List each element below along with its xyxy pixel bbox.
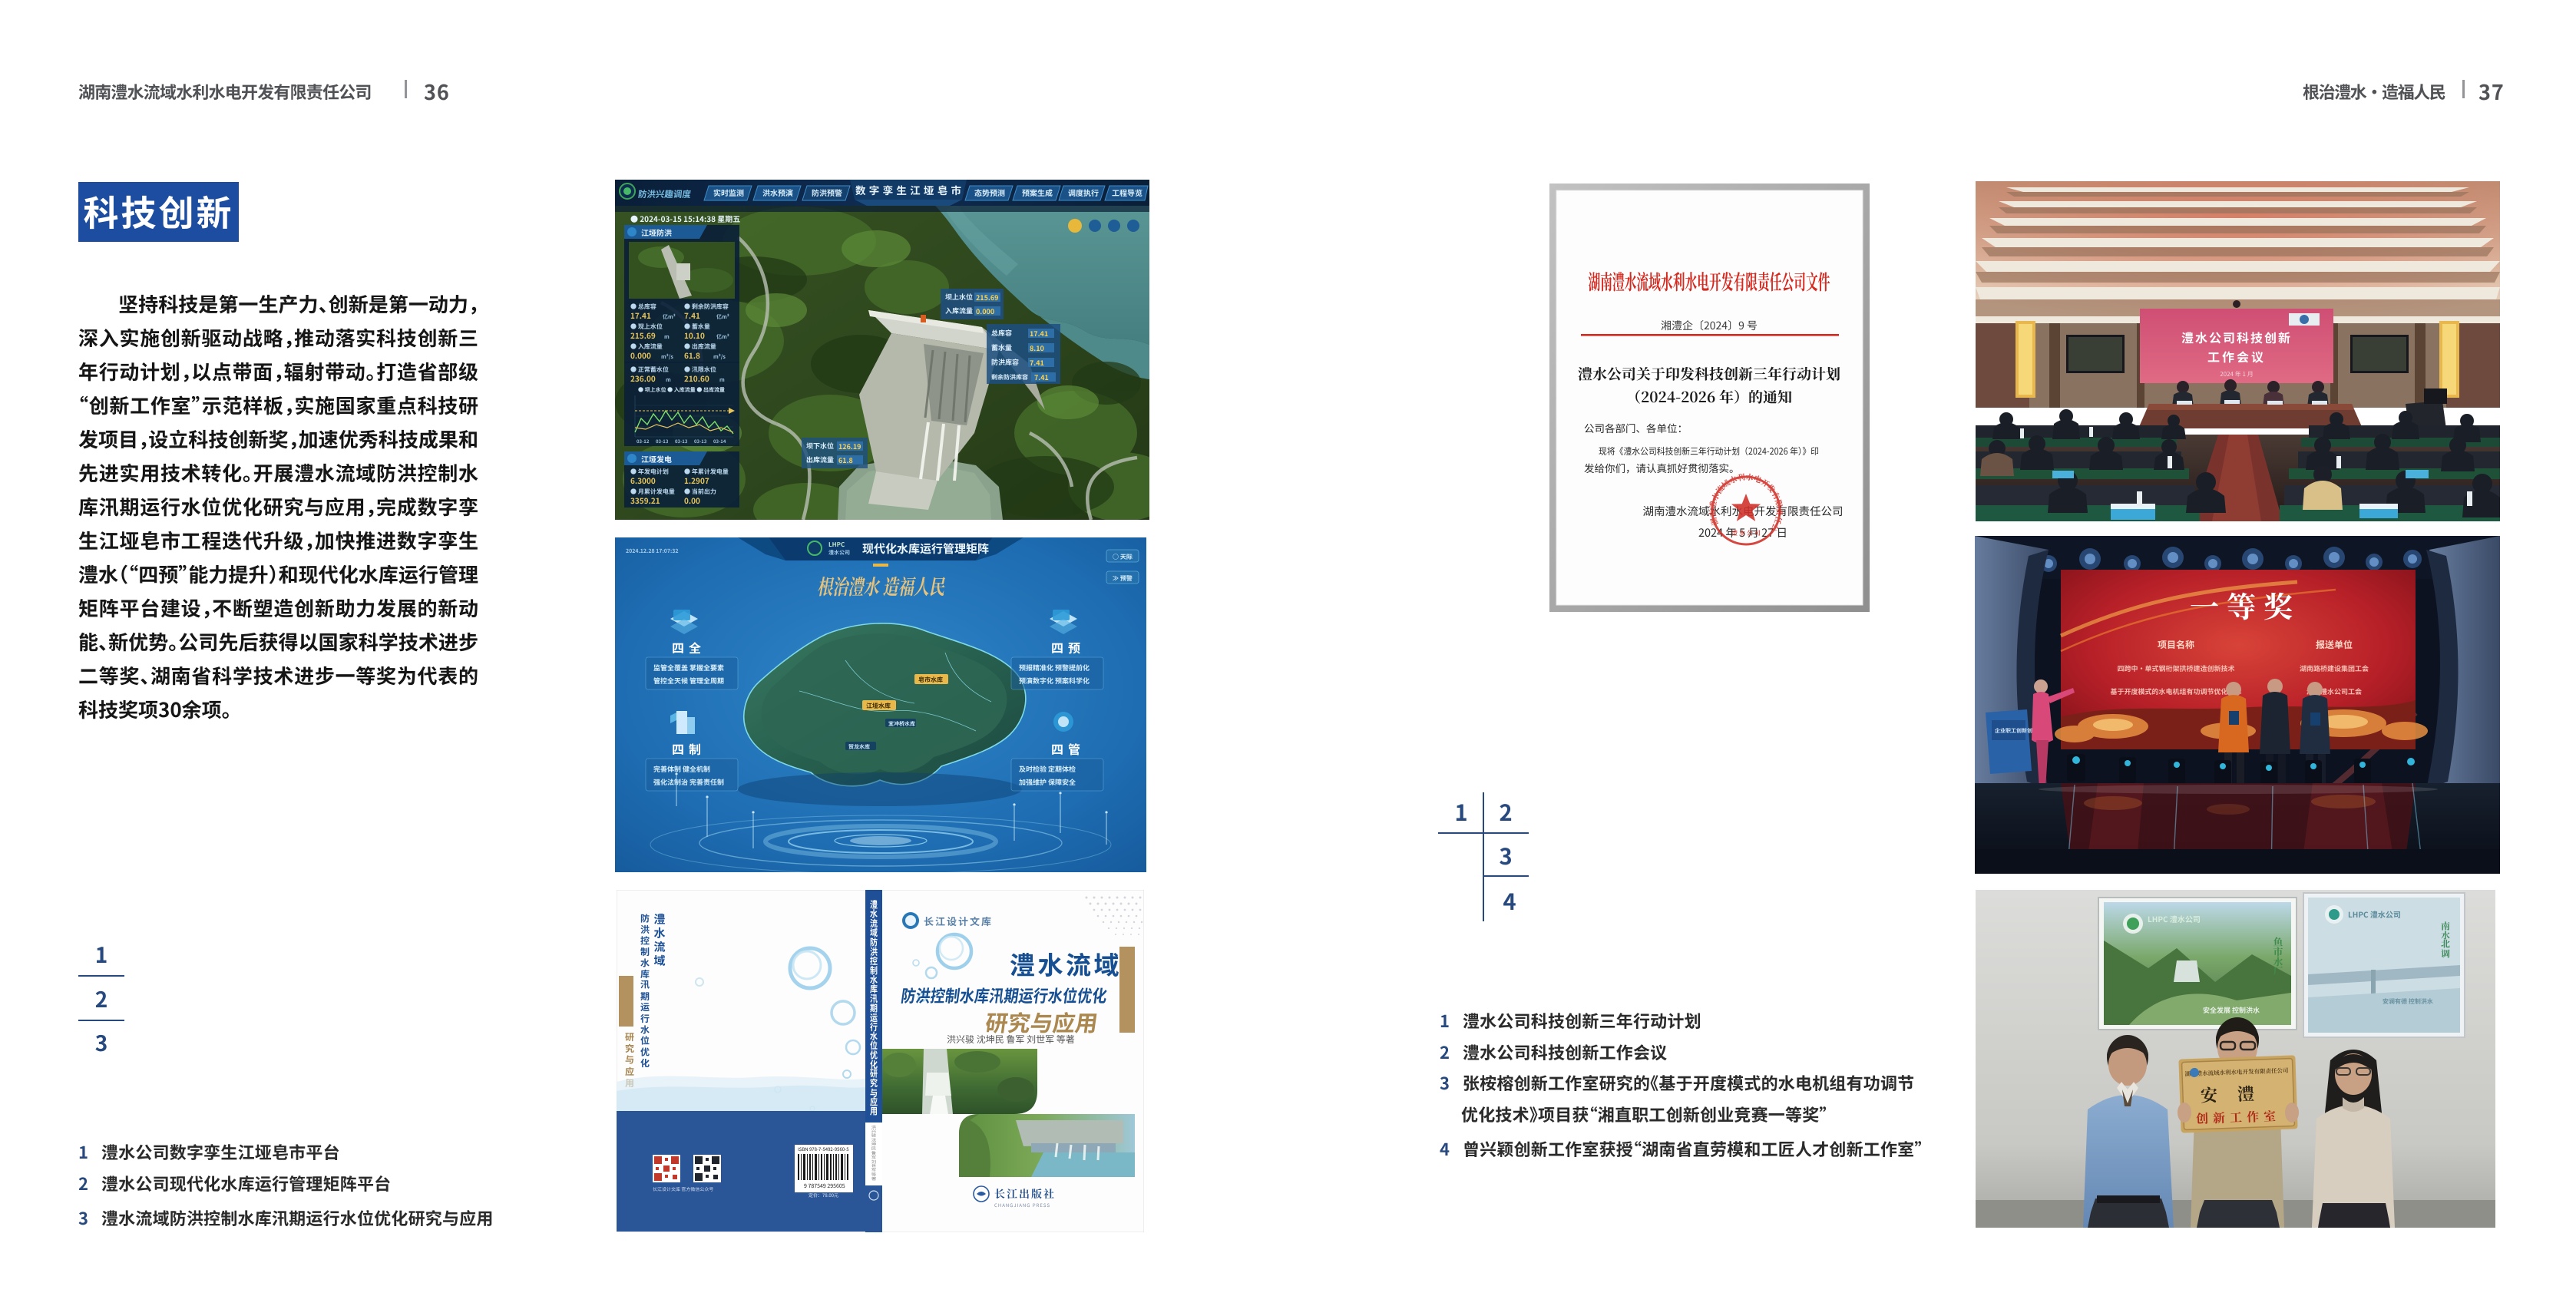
svg-text:126.19: 126.19 bbox=[838, 441, 861, 451]
svg-text:LHPC 澧水公司: LHPC 澧水公司 bbox=[2348, 908, 2401, 920]
svg-text:长江出版社: 长江出版社 bbox=[994, 1186, 1056, 1202]
svg-text:ISBN 978-7-5492-9560-5: ISBN 978-7-5492-9560-5 bbox=[798, 1146, 849, 1152]
svg-text:防洪库容: 防洪库容 bbox=[991, 357, 1019, 367]
svg-text:江垭水库: 江垭水库 bbox=[866, 702, 891, 710]
svg-text:亿m³: 亿m³ bbox=[663, 313, 676, 321]
svg-text:现代化水库运行管理矩阵: 现代化水库运行管理矩阵 bbox=[862, 541, 989, 557]
svg-text:61.8: 61.8 bbox=[684, 349, 700, 361]
svg-text:m³/s: m³/s bbox=[661, 353, 673, 361]
svg-text:发给你们，请认真抓好贯彻落实。: 发给你们，请认真抓好贯彻落实。 bbox=[1584, 460, 1740, 475]
svg-text:9 787549 295605: 9 787549 295605 bbox=[804, 1182, 845, 1190]
svg-text:鱼市水厂: 鱼市水厂 bbox=[2271, 936, 2286, 977]
svg-text:0.00: 0.00 bbox=[684, 494, 700, 506]
svg-text:（2024-2026 年）的通知: （2024-2026 年）的通知 bbox=[1626, 386, 1792, 407]
svg-text:长江设计文库: 长江设计文库 bbox=[924, 914, 993, 928]
svg-text:完善体制 健全机制: 完善体制 健全机制 bbox=[653, 764, 710, 774]
svg-text:公司各部门、各单位：: 公司各部门、各单位： bbox=[1584, 420, 1688, 435]
svg-text:澧水公司科技创新: 澧水公司科技创新 bbox=[2181, 328, 2292, 346]
svg-text:管控全天候 管理全周期: 管控全天候 管理全周期 bbox=[653, 676, 724, 686]
svg-text:61.8: 61.8 bbox=[838, 455, 853, 465]
svg-text:洪兴骏 沈坤民 鲁军 刘世军 等著: 洪兴骏 沈坤民 鲁军 刘世军 等著 bbox=[947, 1033, 1075, 1046]
svg-text:LHPC 澧水公司: LHPC 澧水公司 bbox=[2148, 913, 2201, 924]
svg-text:8.10: 8.10 bbox=[1030, 343, 1044, 353]
svg-text:m: m bbox=[666, 376, 671, 384]
svg-text:澧水公司: 澧水公司 bbox=[828, 549, 850, 557]
svg-text:17.41: 17.41 bbox=[1030, 329, 1048, 339]
svg-text:6.3000: 6.3000 bbox=[630, 474, 656, 486]
svg-text:预报精准化 预警提前化: 预报精准化 预警提前化 bbox=[1019, 663, 1090, 673]
svg-text:坝上水位: 坝上水位 bbox=[945, 292, 973, 302]
svg-text:防洪兴趣调度: 防洪兴趣调度 bbox=[637, 188, 692, 200]
svg-text:湖南澧水流域水利水电开发有限责任公司文件: 湖南澧水流域水利水电开发有限责任公司文件 bbox=[1589, 266, 1830, 296]
svg-text:剩余防洪库容: 剩余防洪库容 bbox=[991, 373, 1028, 382]
svg-text:亿m³: 亿m³ bbox=[716, 313, 729, 321]
svg-text:预案生成: 预案生成 bbox=[1022, 187, 1053, 198]
svg-text:创新工作室: 创新工作室 bbox=[2196, 1106, 2281, 1127]
svg-text:预演数字化 预案科学化: 预演数字化 预案科学化 bbox=[1019, 676, 1090, 686]
svg-text:及时检验 定期体检: 及时检验 定期体检 bbox=[1019, 764, 1076, 774]
svg-text:企业职工创新创业: 企业职工创新创业 bbox=[1995, 727, 2038, 735]
svg-text:总库容: 总库容 bbox=[991, 328, 1012, 338]
svg-text:一等奖: 一等奖 bbox=[2190, 584, 2300, 626]
svg-text:m: m bbox=[664, 333, 670, 341]
svg-text:7.41: 7.41 bbox=[684, 309, 700, 321]
svg-text:m³/s: m³/s bbox=[713, 353, 726, 361]
svg-text:236.00: 236.00 bbox=[630, 372, 656, 384]
svg-text:长江设计文库 官方微信公众号: 长江设计文库 官方微信公众号 bbox=[653, 1185, 713, 1192]
svg-text:报送单位: 报送单位 bbox=[2316, 638, 2353, 651]
svg-text:防洪控制水库汛期运行水位优化: 防洪控制水库汛期运行水位优化 bbox=[639, 913, 652, 1069]
svg-text:出库流量: 出库流量 bbox=[806, 455, 834, 465]
svg-text:m: m bbox=[719, 376, 725, 384]
svg-text:定价：78.00元: 定价：78.00元 bbox=[809, 1192, 838, 1199]
svg-text:四管: 四管 bbox=[1051, 739, 1085, 758]
svg-text:宜冲桥水库: 宜冲桥水库 bbox=[888, 720, 915, 728]
svg-text:强化法制治 完善责任制: 强化法制治 完善责任制 bbox=[653, 777, 724, 787]
svg-text:贺龙水库: 贺龙水库 bbox=[848, 743, 870, 751]
svg-text:防洪控制水库汛期运行水位优化: 防洪控制水库汛期运行水位优化 bbox=[900, 983, 1109, 1007]
svg-text:四制: 四制 bbox=[672, 739, 706, 758]
svg-text:澧 水 公 司: 澧 水 公 司 bbox=[1731, 529, 1761, 537]
svg-text:江垭发电: 江垭发电 bbox=[641, 453, 672, 465]
svg-text:根治澧水 造福人民: 根治澧水 造福人民 bbox=[817, 570, 945, 600]
svg-text:17.41: 17.41 bbox=[630, 309, 651, 321]
svg-text:安全发展 控制洪水: 安全发展 控制洪水 bbox=[2203, 1005, 2260, 1015]
svg-text:监管全覆盖 掌握全要素: 监管全覆盖 掌握全要素 bbox=[653, 663, 724, 673]
svg-text:03-12: 03-12 bbox=[637, 438, 650, 445]
svg-text:入库流量: 入库流量 bbox=[945, 306, 973, 316]
svg-text:蓄水量: 蓄水量 bbox=[991, 342, 1012, 352]
svg-text:洪水预演: 洪水预演 bbox=[762, 187, 793, 198]
svg-text:● 坝上水位 ● 入库流量 ● 出库流量: ● 坝上水位 ● 入库流量 ● 出库流量 bbox=[638, 386, 725, 394]
svg-text:LHPC: LHPC bbox=[828, 541, 845, 549]
svg-text:四跨中·单式钢桁架拱桥建造创新技术: 四跨中·单式钢桁架拱桥建造创新技术 bbox=[2117, 663, 2234, 673]
svg-text:○ 天际: ○ 天际 bbox=[1113, 553, 1133, 561]
svg-text:工作会议: 工作会议 bbox=[2207, 347, 2266, 365]
svg-text:7.41: 7.41 bbox=[1030, 358, 1044, 368]
svg-text:澧水流域: 澧水流域 bbox=[652, 913, 668, 968]
svg-text:工程导览: 工程导览 bbox=[1112, 187, 1143, 198]
svg-text:现将《澧水公司科技创新三年行动计划（2024-2026 年）: 现将《澧水公司科技创新三年行动计划（2024-2026 年）》印 bbox=[1599, 445, 1819, 458]
svg-text:四预: 四预 bbox=[1051, 638, 1085, 656]
svg-text:10.10: 10.10 bbox=[684, 329, 705, 341]
svg-text:湘澧企〔2024〕9 号: 湘澧企〔2024〕9 号 bbox=[1661, 318, 1758, 333]
svg-text:≫ 预警: ≫ 预警 bbox=[1113, 574, 1133, 583]
svg-text:江垭防洪: 江垭防洪 bbox=[641, 226, 672, 238]
svg-text:基于开度模式的水电机组有功调节优化技术: 基于开度模式的水电机组有功调节优化技术 bbox=[2110, 686, 2241, 696]
svg-text:实时监测: 实时监测 bbox=[713, 187, 744, 198]
svg-text:南水北调: 南水北调 bbox=[2439, 921, 2452, 958]
svg-text:CHANGJIANG PRESS: CHANGJIANG PRESS bbox=[994, 1202, 1050, 1208]
svg-text:安澜有德 控制洪水: 安澜有德 控制洪水 bbox=[2383, 997, 2433, 1006]
svg-text:210.60: 210.60 bbox=[684, 372, 709, 384]
svg-text:03-14: 03-14 bbox=[713, 438, 726, 445]
svg-text:四全: 四全 bbox=[672, 638, 706, 656]
svg-text:坝下水位: 坝下水位 bbox=[806, 441, 834, 451]
svg-text:0.000: 0.000 bbox=[630, 349, 651, 361]
svg-text:215.69: 215.69 bbox=[976, 293, 998, 303]
svg-text:澧水流域防洪控制水库汛期运行水位优化研究与应用: 澧水流域防洪控制水库汛期运行水位优化研究与应用 bbox=[868, 899, 880, 1116]
svg-text:2024 年 1 月: 2024 年 1 月 bbox=[2220, 370, 2254, 379]
svg-text:亿m³: 亿m³ bbox=[716, 333, 729, 341]
svg-text:● 2024-03-15 15:14:38 星期五: ● 2024-03-15 15:14:38 星期五 bbox=[630, 213, 740, 224]
svg-text:防洪预警: 防洪预警 bbox=[812, 187, 842, 198]
svg-text:03-13: 03-13 bbox=[694, 438, 707, 445]
svg-text:03-13: 03-13 bbox=[675, 438, 688, 445]
svg-text:03-13: 03-13 bbox=[656, 438, 669, 445]
svg-text:215.69: 215.69 bbox=[630, 329, 656, 341]
svg-text:7.41: 7.41 bbox=[1034, 372, 1049, 382]
svg-text:调度执行: 调度执行 bbox=[1068, 187, 1099, 198]
svg-text:2024.12.28 17:07:32: 2024.12.28 17:07:32 bbox=[626, 547, 679, 555]
svg-text:加强维护 保障安全: 加强维护 保障安全 bbox=[1019, 777, 1076, 787]
svg-text:态势预测: 态势预测 bbox=[974, 187, 1005, 198]
svg-text:澧水公司关于印发科技创新三年行动计划: 澧水公司关于印发科技创新三年行动计划 bbox=[1578, 363, 1840, 384]
svg-text:1.2907: 1.2907 bbox=[684, 474, 709, 486]
svg-text:项目名称: 项目名称 bbox=[2158, 638, 2194, 651]
svg-text:洪兴骏 沈坤民 鲁军 刘世军 等著: 洪兴骏 沈坤民 鲁军 刘世军 等著 bbox=[870, 1125, 878, 1181]
svg-text:安澧: 安澧 bbox=[2200, 1080, 2274, 1106]
svg-text:澧水流域: 澧水流域 bbox=[1010, 945, 1122, 982]
svg-text:0.000: 0.000 bbox=[976, 306, 994, 316]
svg-text:3359.21: 3359.21 bbox=[630, 494, 660, 506]
svg-text:皂市水库: 皂市水库 bbox=[918, 676, 943, 684]
svg-text:湖南路桥建设集团工会: 湖南路桥建设集团工会 bbox=[2300, 663, 2369, 673]
